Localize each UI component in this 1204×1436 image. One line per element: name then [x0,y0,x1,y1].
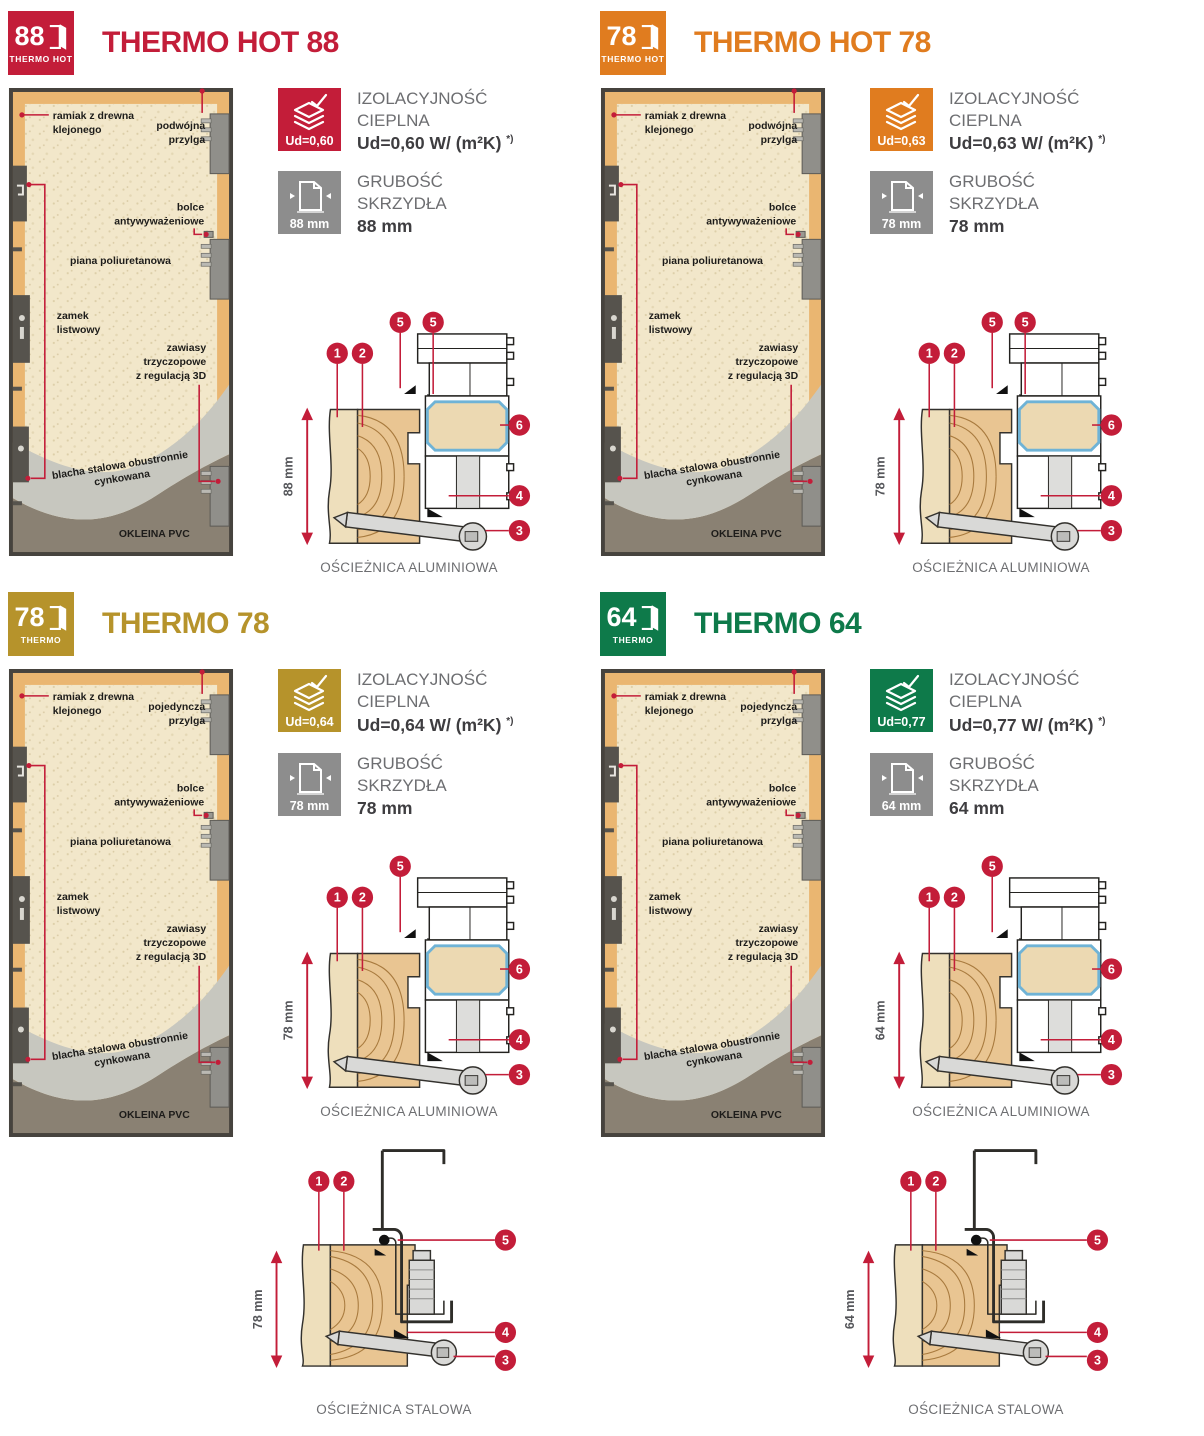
callout-2: 2 [925,1171,946,1192]
dimension-arrow: 64 mm [874,951,905,1089]
open-door-icon [48,23,68,51]
insulation-badge: Ud=0,60 [278,134,341,148]
svg-text:5: 5 [502,1233,509,1247]
label-veneer: OKLEINA PVC [711,529,782,540]
thickness-value: 64 mm [949,798,1039,819]
aluminium-section-svg: 64 mm [870,845,1128,1095]
panel-right-column: Ud=0,77 IZOLACYJNOŚĆCIEPLNA Ud=0,77 W/ (… [870,669,1132,1416]
insulation-icon-tile: Ud=0,64 [278,669,341,732]
thickness-badge: 78 mm [870,217,933,231]
door-thickness-icon [877,173,925,217]
svg-text:5: 5 [397,859,404,873]
panel-title: THERMO HOT 88 [102,26,339,60]
dimension-arrow: 78 mm [282,951,313,1089]
steel-caption: OŚCIEŻNICA STALOWA [248,1402,540,1417]
insulation-badge: Ud=0,63 [870,134,933,148]
thickness-label: GRUBOŚĆSKRZYDŁA [949,171,1039,215]
insulation-value: Ud=0,77 W/ (m²K) *) [949,715,1106,736]
thickness-value: 88 mm [357,216,447,237]
svg-text:78 mm: 78 mm [251,1289,265,1329]
logo-main: 88 [8,23,74,51]
insulation-text: IZOLACYJNOŚĆCIEPLNA Ud=0,63 W/ (m²K) *) [949,88,1106,154]
svg-text:6: 6 [1108,419,1115,433]
thickness-label: GRUBOŚĆSKRZYDŁA [949,753,1039,797]
callout-6: 6 [1101,415,1122,436]
insulation-layers-icon [285,90,333,134]
svg-text:2: 2 [359,890,366,904]
svg-text:3: 3 [1108,1068,1115,1082]
svg-text:2: 2 [951,347,958,361]
callout-1: 1 [919,886,940,907]
thickness-label: GRUBOŚĆSKRZYDŁA [357,171,447,215]
svg-text:64 mm: 64 mm [843,1289,857,1329]
panels-grid: 88 THERMO HOT THERMO HOT 88 [0,0,1204,1417]
label-veneer: OKLEINA PVC [119,529,190,540]
panel-title: THERMO 78 [102,607,269,641]
dimension-arrow: 88 mm [282,408,313,546]
panel-header: 78 THERMO THERMO 78 [8,585,593,663]
panel-right-column: Ud=0,64 IZOLACYJNOŚĆCIEPLNA Ud=0,64 W/ (… [278,669,540,1416]
steel-caption: OŚCIEŻNICA STALOWA [840,1402,1132,1417]
thickness-text: GRUBOŚĆSKRZYDŁA 88 mm [357,171,447,237]
door-thickness-icon [285,755,333,799]
callout-1: 1 [327,886,348,907]
svg-text:5: 5 [397,316,404,330]
panel-body: ramiak z drewnaklejonego pojedynczaprzyl… [600,669,1185,1416]
aluminium-caption: OŚCIEŻNICA ALUMINIOWA [278,1104,540,1119]
label-veneer: OKLEINA PVC [119,1110,190,1121]
callout-5: 5 [1087,1229,1108,1250]
svg-text:4: 4 [1094,1325,1101,1339]
product-panel: 88 THERMO HOT THERMO HOT 88 [8,4,593,575]
door-cutaway-svg: ramiak z drewnaklejonego pojedynczaprzyl… [8,669,234,1137]
aluminium-profiles [996,334,1105,517]
svg-text:3: 3 [502,1353,509,1367]
spec-insulation: Ud=0,77 IZOLACYJNOŚĆCIEPLNA Ud=0,77 W/ (… [870,669,1132,735]
insulation-text: IZOLACYJNOŚĆCIEPLNA Ud=0,77 W/ (m²K) *) [949,669,1106,735]
logo-series: THERMO HOT [600,54,666,64]
open-door-icon [640,604,660,632]
logo-series: THERMO [600,635,666,645]
callout-5a: 5 [390,855,411,876]
aluminium-section-svg: 78 mm [278,845,536,1095]
steel-frame-diagram: 64 mm [840,1141,1132,1417]
svg-text:5: 5 [989,316,996,330]
svg-text:4: 4 [516,1033,523,1047]
svg-text:5: 5 [430,316,437,330]
aluminium-caption: OŚCIEŻNICA ALUMINIOWA [870,1104,1132,1119]
thickness-badge: 64 mm [870,799,933,813]
product-logo-badge: 78 THERMO [8,592,74,656]
logo-main: 64 [600,604,666,632]
door-body [9,88,233,556]
panel-header: 78 THERMO HOT THERMO HOT 78 [600,4,1185,82]
callout-1: 1 [308,1171,329,1192]
callout-3: 3 [1101,1064,1122,1085]
aluminium-section-svg: 78 mm [870,301,1128,551]
aluminium-section-svg: 88 mm [278,301,536,551]
logo-number: 78 [14,604,44,631]
door-illustration: ramiak z drewnaklejonego pojedynczaprzyl… [600,669,826,1416]
callout-4: 4 [495,1322,516,1343]
panel-body: ramiak z drewnaklejonego podwójnaprzylga… [600,88,1185,575]
thickness-icon-tile: 88 mm [278,171,341,234]
callout-6: 6 [1101,958,1122,979]
door-body [9,669,233,1137]
label-veneer: OKLEINA PVC [711,1110,782,1121]
callout-4: 4 [509,1029,530,1050]
callout-1: 1 [900,1171,921,1192]
callout-6: 6 [509,958,530,979]
insulation-label: IZOLACYJNOŚĆCIEPLNA [949,669,1106,713]
thickness-badge: 88 mm [278,217,341,231]
door-thickness-icon [877,755,925,799]
thickness-icon-tile: 78 mm [870,171,933,234]
door-cutaway-svg: ramiak z drewnaklejonego podwójnaprzylga… [600,88,826,556]
open-door-icon [640,23,660,51]
aluminium-profiles [404,334,513,517]
callout-1: 1 [919,343,940,364]
svg-text:1: 1 [315,1174,322,1188]
label-foam: piana poliuretanowa [662,256,763,267]
callout-2: 2 [333,1171,354,1192]
svg-text:1: 1 [334,347,341,361]
svg-text:6: 6 [1108,962,1115,976]
callout-4: 4 [509,485,530,506]
callout-5b: 5 [1015,312,1036,333]
callout-6: 6 [509,415,530,436]
dimension-arrow: 64 mm [843,1250,874,1367]
door-cutaway-svg: ramiak z drewnaklejonego pojedynczaprzyl… [600,669,826,1137]
aluminium-caption: OŚCIEŻNICA ALUMINIOWA [870,560,1132,575]
steel-section-svg: 78 mm [248,1141,533,1393]
steel-frame-diagram: 78 mm [248,1141,540,1417]
svg-text:2: 2 [340,1174,347,1188]
insulation-layers-icon [285,671,333,715]
callout-2: 2 [944,886,965,907]
door-body [601,88,825,556]
spec-insulation: Ud=0,63 IZOLACYJNOŚĆCIEPLNA Ud=0,63 W/ (… [870,88,1132,154]
panel-header: 64 THERMO THERMO 64 [600,585,1185,663]
svg-text:3: 3 [516,524,523,538]
callout-5a: 5 [982,855,1003,876]
svg-text:3: 3 [1094,1353,1101,1367]
product-logo-badge: 78 THERMO HOT [600,11,666,75]
svg-text:5: 5 [989,859,996,873]
panel-body: ramiak z drewnaklejonego podwójnaprzylga… [8,88,593,575]
thickness-text: GRUBOŚĆSKRZYDŁA 64 mm [949,753,1039,819]
callout-1: 1 [327,343,348,364]
callout-3: 3 [509,1064,530,1085]
insulation-value: Ud=0,63 W/ (m²K) *) [949,133,1106,154]
svg-text:6: 6 [516,419,523,433]
open-door-icon [48,604,68,632]
logo-series: THERMO [8,635,74,645]
callout-3: 3 [495,1349,516,1370]
thickness-badge: 78 mm [278,799,341,813]
label-foam: piana poliuretanowa [70,838,171,849]
product-panel: 64 THERMO THERMO 64 [600,585,1185,1416]
svg-text:1: 1 [907,1174,914,1188]
svg-text:4: 4 [516,490,523,504]
callout-2: 2 [944,343,965,364]
callout-5a: 5 [982,312,1003,333]
svg-text:3: 3 [1108,524,1115,538]
insulation-badge: Ud=0,64 [278,715,341,729]
insulation-text: IZOLACYJNOŚĆCIEPLNA Ud=0,60 W/ (m²K) *) [357,88,514,154]
svg-text:1: 1 [926,890,933,904]
aluminium-profiles [404,878,513,1061]
logo-main: 78 [8,604,74,632]
callout-2: 2 [352,343,373,364]
callout-4: 4 [1101,485,1122,506]
svg-text:4: 4 [1108,1033,1115,1047]
spec-thickness: 78 mm GRUBOŚĆSKRZYDŁA 78 mm [870,171,1132,237]
door-illustration: ramiak z drewnaklejonego podwójnaprzylga… [8,88,234,575]
steel-section-svg: 64 mm [840,1141,1125,1393]
aluminium-frame-diagram: 78 mm [278,845,540,1119]
callout-3: 3 [1101,520,1122,541]
svg-text:88 mm: 88 mm [282,457,296,497]
door-illustration: ramiak z drewnaklejonego podwójnaprzylga… [600,88,826,575]
insulation-badge: Ud=0,77 [870,715,933,729]
aluminium-frame-diagram: 88 mm [278,301,540,575]
logo-number: 64 [606,604,636,631]
label-foam: piana poliuretanowa [70,256,171,267]
callout-2: 2 [352,886,373,907]
svg-text:2: 2 [932,1174,939,1188]
svg-text:1: 1 [926,347,933,361]
svg-text:64 mm: 64 mm [874,1000,888,1040]
product-logo-badge: 64 THERMO [600,592,666,656]
callout-5: 5 [495,1229,516,1250]
product-panel: 78 THERMO THERMO 78 [8,585,593,1416]
insulation-layers-icon [877,90,925,134]
callout-3: 3 [1087,1349,1108,1370]
aluminium-frame-diagram: 64 mm [870,845,1132,1119]
spec-thickness: 88 mm GRUBOŚĆSKRZYDŁA 88 mm [278,171,540,237]
svg-text:78 mm: 78 mm [282,1000,296,1040]
svg-text:78 mm: 78 mm [874,457,888,497]
panel-title: THERMO HOT 78 [694,26,931,60]
thickness-value: 78 mm [949,216,1039,237]
panel-right-column: Ud=0,60 IZOLACYJNOŚĆCIEPLNA Ud=0,60 W/ (… [278,88,540,575]
thickness-icon-tile: 64 mm [870,753,933,816]
thickness-value: 78 mm [357,798,447,819]
insulation-icon-tile: Ud=0,77 [870,669,933,732]
thickness-label: GRUBOŚĆSKRZYDŁA [357,753,447,797]
callout-5a: 5 [390,312,411,333]
panel-right-column: Ud=0,63 IZOLACYJNOŚĆCIEPLNA Ud=0,63 W/ (… [870,88,1132,575]
thickness-icon-tile: 78 mm [278,753,341,816]
svg-text:6: 6 [516,962,523,976]
svg-text:4: 4 [1108,490,1115,504]
svg-text:4: 4 [502,1325,509,1339]
label-foam: piana poliuretanowa [662,838,763,849]
door-illustration: ramiak z drewnaklejonego pojedynczaprzyl… [8,669,234,1416]
logo-number: 88 [14,23,44,50]
insulation-icon-tile: Ud=0,60 [278,88,341,151]
door-body [601,669,825,1137]
spec-insulation: Ud=0,64 IZOLACYJNOŚĆCIEPLNA Ud=0,64 W/ (… [278,669,540,735]
insulation-label: IZOLACYJNOŚĆCIEPLNA [357,88,514,132]
insulation-value: Ud=0,64 W/ (m²K) *) [357,715,514,736]
product-panel: 78 THERMO HOT THERMO HOT 78 [600,4,1185,575]
aluminium-profiles [996,878,1105,1061]
insulation-label: IZOLACYJNOŚĆCIEPLNA [949,88,1106,132]
panel-header: 88 THERMO HOT THERMO HOT 88 [8,4,593,82]
door-cutaway-svg: ramiak z drewnaklejonego podwójnaprzylga… [8,88,234,556]
spec-thickness: 78 mm GRUBOŚĆSKRZYDŁA 78 mm [278,753,540,819]
callout-4: 4 [1087,1322,1108,1343]
dimension-arrow: 78 mm [251,1250,282,1367]
svg-text:5: 5 [1094,1233,1101,1247]
callout-4: 4 [1101,1029,1122,1050]
svg-text:2: 2 [359,347,366,361]
spec-insulation: Ud=0,60 IZOLACYJNOŚĆCIEPLNA Ud=0,60 W/ (… [278,88,540,154]
svg-text:2: 2 [951,890,958,904]
thickness-text: GRUBOŚĆSKRZYDŁA 78 mm [949,171,1039,237]
logo-number: 78 [606,23,636,50]
door-thickness-icon [285,173,333,217]
dimension-arrow: 78 mm [874,408,905,546]
thickness-text: GRUBOŚĆSKRZYDŁA 78 mm [357,753,447,819]
spec-thickness: 64 mm GRUBOŚĆSKRZYDŁA 64 mm [870,753,1132,819]
callout-5b: 5 [423,312,444,333]
insulation-layers-icon [877,671,925,715]
panel-title: THERMO 64 [694,607,861,641]
svg-text:5: 5 [1022,316,1029,330]
svg-text:3: 3 [516,1068,523,1082]
product-logo-badge: 88 THERMO HOT [8,11,74,75]
aluminium-caption: OŚCIEŻNICA ALUMINIOWA [278,560,540,575]
logo-series: THERMO HOT [8,54,74,64]
insulation-label: IZOLACYJNOŚĆCIEPLNA [357,669,514,713]
insulation-text: IZOLACYJNOŚĆCIEPLNA Ud=0,64 W/ (m²K) *) [357,669,514,735]
svg-text:1: 1 [334,890,341,904]
insulation-value: Ud=0,60 W/ (m²K) *) [357,133,514,154]
panel-body: ramiak z drewnaklejonego pojedynczaprzyl… [8,669,593,1416]
insulation-icon-tile: Ud=0,63 [870,88,933,151]
callout-3: 3 [509,520,530,541]
logo-main: 78 [600,23,666,51]
aluminium-frame-diagram: 78 mm [870,301,1132,575]
